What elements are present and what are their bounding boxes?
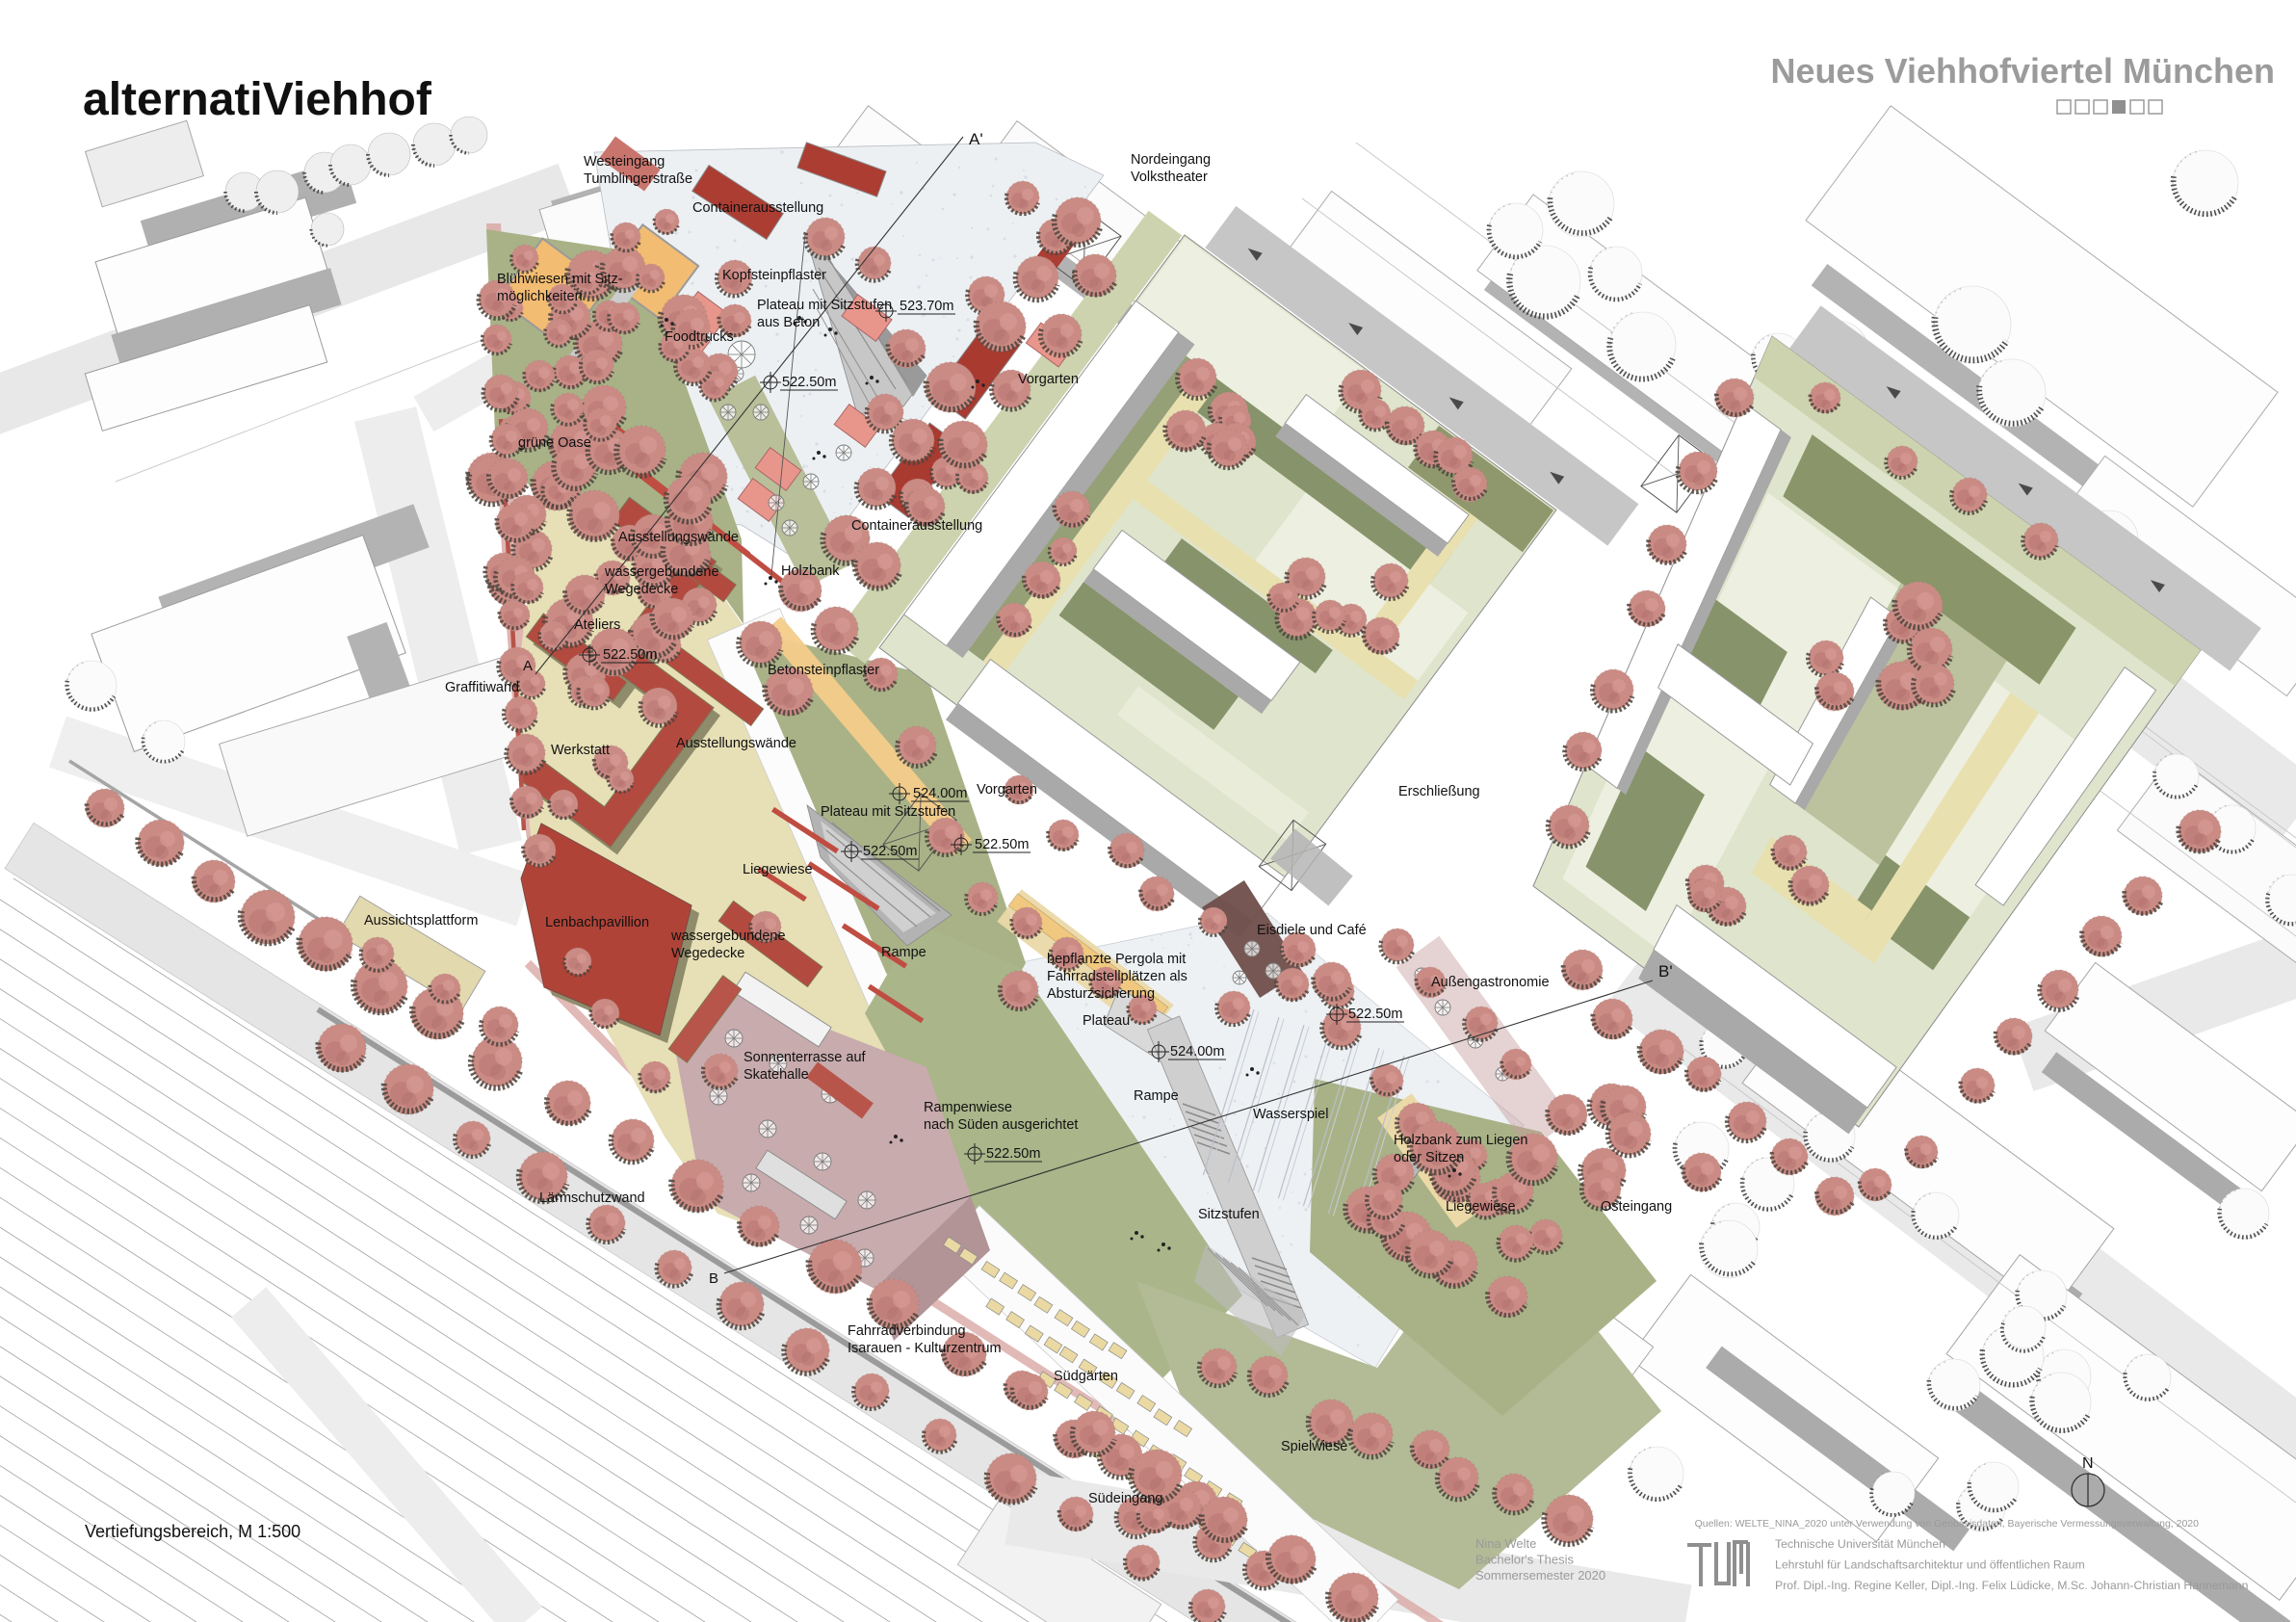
svg-text:Skatehalle: Skatehalle bbox=[744, 1067, 809, 1083]
svg-text:alternatiViehhof: alternatiViehhof bbox=[83, 74, 432, 125]
svg-text:Außengastronomie: Außengastronomie bbox=[1431, 975, 1550, 990]
svg-text:wassergebundene: wassergebundene bbox=[670, 929, 786, 944]
svg-text:Ateliers: Ateliers bbox=[574, 617, 620, 633]
svg-text:Kopfsteinpflaster: Kopfsteinpflaster bbox=[722, 268, 826, 283]
svg-text:522.50m: 522.50m bbox=[975, 837, 1029, 852]
svg-text:Betonsteinpflaster: Betonsteinpflaster bbox=[768, 663, 879, 678]
svg-text:Sommersemester 2020: Sommersemester 2020 bbox=[1475, 1568, 1605, 1583]
svg-text:523.70m: 523.70m bbox=[900, 299, 953, 314]
svg-text:Containerausstellung: Containerausstellung bbox=[692, 200, 823, 216]
svg-text:aus Beton: aus Beton bbox=[757, 315, 820, 330]
svg-text:Sonnenterrasse auf: Sonnenterrasse auf bbox=[744, 1050, 867, 1065]
svg-text:Werkstatt: Werkstatt bbox=[551, 743, 610, 758]
svg-text:Wegedecke: Wegedecke bbox=[671, 946, 744, 961]
svg-text:Vorgarten: Vorgarten bbox=[1018, 372, 1079, 387]
svg-text:oder Sitzen: oder Sitzen bbox=[1394, 1150, 1464, 1165]
svg-text:Lehrstuhl für Landschaftsarchi: Lehrstuhl für Landschaftsarchitektur und… bbox=[1775, 1558, 2085, 1572]
svg-text:Rampe: Rampe bbox=[881, 945, 926, 960]
svg-text:Ausstellungswände: Ausstellungswände bbox=[618, 530, 739, 545]
svg-text:Wegedecke: Wegedecke bbox=[605, 582, 678, 597]
svg-text:524.00m: 524.00m bbox=[913, 786, 967, 801]
svg-text:Nina Welte: Nina Welte bbox=[1475, 1536, 1536, 1551]
svg-text:Fahrradstellplätzen als: Fahrradstellplätzen als bbox=[1047, 969, 1187, 984]
svg-text:Nordeingang: Nordeingang bbox=[1131, 152, 1211, 168]
svg-text:Wasserspiel: Wasserspiel bbox=[1253, 1107, 1328, 1122]
svg-text:Containerausstellung: Containerausstellung bbox=[851, 518, 982, 534]
svg-text:Plateau: Plateau bbox=[1083, 1013, 1130, 1029]
svg-text:Lenbachpavillion: Lenbachpavillion bbox=[545, 915, 649, 930]
svg-text:Fahrradverbindung: Fahrradverbindung bbox=[848, 1323, 966, 1339]
svg-text:Absturzsicherung: Absturzsicherung bbox=[1047, 986, 1155, 1002]
svg-text:Liegewiese: Liegewiese bbox=[1446, 1199, 1516, 1215]
svg-text:Plateau mit Sitzstufen: Plateau mit Sitzstufen bbox=[821, 804, 955, 820]
svg-text:Sitzstufen: Sitzstufen bbox=[1198, 1207, 1260, 1222]
svg-text:522.50m: 522.50m bbox=[603, 647, 657, 663]
svg-text:wassergebundene: wassergebundene bbox=[604, 564, 719, 580]
svg-text:Westeingang: Westeingang bbox=[584, 154, 665, 170]
svg-text:Foodtrucks: Foodtrucks bbox=[665, 329, 734, 345]
svg-text:Prof. Dipl.-Ing. Regine Keller: Prof. Dipl.-Ing. Regine Keller, Dipl.-In… bbox=[1775, 1579, 2249, 1592]
svg-text:Aussichtsplattform: Aussichtsplattform bbox=[364, 913, 478, 929]
svg-text:Isarauen - Kulturzentrum: Isarauen - Kulturzentrum bbox=[848, 1341, 1002, 1356]
svg-text:Vertiefungsbereich, M 1:500: Vertiefungsbereich, M 1:500 bbox=[85, 1522, 300, 1541]
svg-text:A': A' bbox=[969, 130, 983, 148]
svg-text:bepflanzte Pergola mit: bepflanzte Pergola mit bbox=[1047, 952, 1186, 967]
svg-text:Bachelor's Thesis: Bachelor's Thesis bbox=[1475, 1553, 1574, 1567]
svg-text:522.50m: 522.50m bbox=[863, 844, 917, 859]
svg-text:Lärmschutzwand: Lärmschutzwand bbox=[539, 1190, 645, 1206]
svg-text:Plateau mit Sitzstufen: Plateau mit Sitzstufen bbox=[757, 298, 892, 313]
svg-text:Technische Universität München: Technische Universität München bbox=[1775, 1537, 1945, 1551]
svg-text:524.00m: 524.00m bbox=[1170, 1044, 1224, 1060]
svg-text:Ausstellungswände: Ausstellungswände bbox=[676, 736, 796, 751]
svg-text:522.50m: 522.50m bbox=[1348, 1007, 1402, 1022]
svg-text:Volkstheater: Volkstheater bbox=[1131, 170, 1208, 185]
svg-text:N: N bbox=[2082, 1455, 2094, 1472]
svg-text:Vorgarten: Vorgarten bbox=[977, 782, 1037, 798]
svg-text:Rampe: Rampe bbox=[1134, 1088, 1179, 1104]
svg-text:Rampenwiese: Rampenwiese bbox=[924, 1100, 1012, 1115]
svg-text:Neues Viehhofviertel München: Neues Viehhofviertel München bbox=[1771, 51, 2275, 91]
svg-text:Osteingang: Osteingang bbox=[1601, 1199, 1672, 1215]
svg-text:522.50m: 522.50m bbox=[782, 375, 836, 390]
svg-text:Holzbank: Holzbank bbox=[781, 563, 840, 579]
svg-text:Graffitiwand: Graffitiwand bbox=[445, 680, 519, 695]
svg-text:Blühwiesen mit Sitz-: Blühwiesen mit Sitz- bbox=[497, 272, 623, 287]
svg-text:Eisdiele und Café: Eisdiele und Café bbox=[1257, 923, 1367, 938]
svg-text:grüne Oase: grüne Oase bbox=[518, 435, 591, 451]
svg-text:Quellen: WELTE_NINA_2020 unter: Quellen: WELTE_NINA_2020 unter Verwendun… bbox=[1695, 1518, 2200, 1530]
svg-text:Liegewiese: Liegewiese bbox=[743, 862, 813, 877]
svg-text:nach Süden ausgerichtet: nach Süden ausgerichtet bbox=[924, 1117, 1078, 1133]
svg-text:Südgärten: Südgärten bbox=[1054, 1369, 1118, 1384]
svg-text:Spielwiese: Spielwiese bbox=[1281, 1439, 1347, 1454]
svg-text:Südeingang: Südeingang bbox=[1088, 1491, 1162, 1506]
svg-text:B: B bbox=[709, 1270, 718, 1287]
svg-text:Holzbank zum Liegen: Holzbank zum Liegen bbox=[1394, 1133, 1527, 1148]
svg-text:Tumblingerstraße: Tumblingerstraße bbox=[584, 171, 692, 187]
svg-text:möglichkeiten: möglichkeiten bbox=[497, 289, 583, 304]
svg-text:Erschließung: Erschließung bbox=[1398, 784, 1480, 799]
svg-text:B': B' bbox=[1658, 962, 1673, 981]
svg-text:A: A bbox=[523, 658, 533, 674]
svg-text:522.50m: 522.50m bbox=[986, 1146, 1040, 1162]
